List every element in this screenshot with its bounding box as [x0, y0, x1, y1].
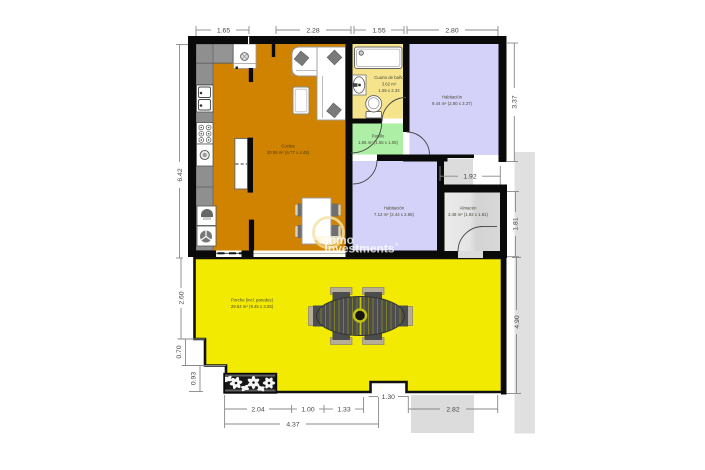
svg-text:Habitación: Habitación	[442, 95, 463, 100]
svg-text:3.48 m² (1.92 x 1.81): 3.48 m² (1.92 x 1.81)	[448, 212, 488, 217]
svg-text:Cocina: Cocina	[281, 144, 295, 149]
svg-text:2.28: 2.28	[306, 27, 319, 34]
svg-text:0.93: 0.93	[190, 372, 197, 385]
svg-text:4.37: 4.37	[286, 421, 299, 428]
svg-text:Investments: Investments	[325, 242, 395, 256]
svg-text:Pasillo: Pasillo	[372, 134, 385, 139]
svg-text:2.04: 2.04	[251, 406, 264, 413]
svg-text:1.55 m² (1.55 x 1.06): 1.55 m² (1.55 x 1.06)	[358, 140, 398, 145]
svg-text:Porche (incl. paredes): Porche (incl. paredes)	[231, 298, 274, 303]
svg-text:1.55 x 2.34: 1.55 x 2.34	[378, 88, 400, 93]
svg-text:Habitación: Habitación	[384, 206, 405, 211]
svg-text:Cuarto de baño: Cuarto de baño	[374, 75, 404, 80]
svg-text:9.44 m² (2.80 x 3.37): 9.44 m² (2.80 x 3.37)	[432, 101, 472, 106]
svg-text:4.90: 4.90	[514, 315, 521, 328]
svg-text:1.30: 1.30	[382, 394, 395, 401]
svg-text:2.60: 2.60	[178, 291, 185, 304]
svg-text:2.80: 2.80	[445, 27, 458, 34]
svg-text:2.82: 2.82	[446, 406, 459, 413]
svg-text:Almacén: Almacén	[460, 206, 477, 211]
svg-text:1.81: 1.81	[513, 217, 520, 230]
svg-text:0.70: 0.70	[176, 345, 183, 358]
svg-text:29.54 m² (9.45 x 3.05): 29.54 m² (9.45 x 3.05)	[231, 304, 274, 309]
svg-text:1.00: 1.00	[301, 406, 314, 413]
svg-text:1.55: 1.55	[372, 27, 385, 34]
svg-text:1.92: 1.92	[463, 174, 476, 181]
svg-text:1.65: 1.65	[217, 27, 230, 34]
svg-text:7.12 m² (2.44 x 2.86): 7.12 m² (2.44 x 2.86)	[374, 212, 414, 217]
svg-text:3.37: 3.37	[512, 95, 519, 108]
svg-text:6.42: 6.42	[177, 168, 184, 181]
svg-text:20.06 m² (6.77 x 4.45): 20.06 m² (6.77 x 4.45)	[267, 150, 310, 155]
svg-text:3.62 m²: 3.62 m²	[382, 82, 397, 87]
svg-text:1.33: 1.33	[337, 406, 350, 413]
